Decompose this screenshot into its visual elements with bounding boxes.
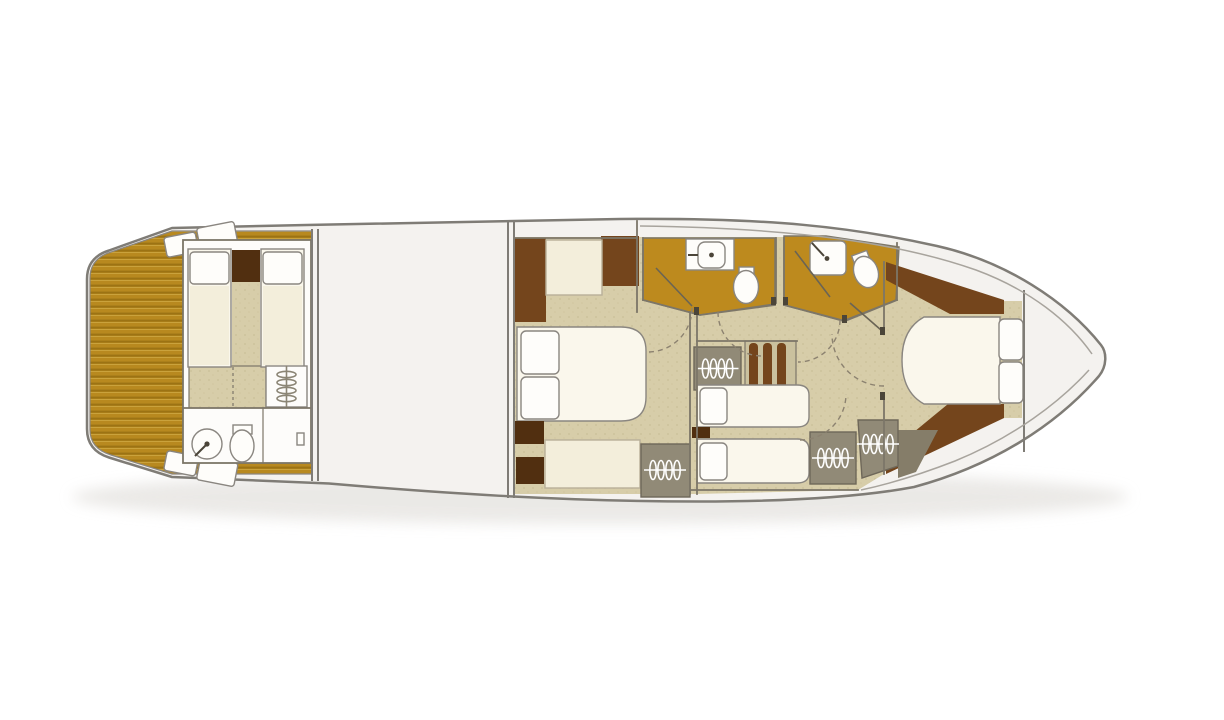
hinge bbox=[771, 297, 776, 305]
crew-nightstand bbox=[232, 250, 260, 282]
twin-nightstand bbox=[692, 427, 710, 438]
toilet bbox=[734, 271, 759, 304]
pillow bbox=[521, 377, 559, 419]
floor-plan-svg bbox=[0, 0, 1224, 720]
master-nightstand bbox=[514, 421, 544, 444]
stair-rail bbox=[763, 343, 772, 389]
pillow bbox=[521, 331, 559, 374]
basin-drain bbox=[709, 253, 714, 258]
crew-toilet bbox=[230, 430, 254, 462]
hinge bbox=[783, 297, 788, 305]
crew-bed-mattress bbox=[190, 286, 229, 365]
lobby bbox=[694, 341, 796, 390]
crew-bed-mattress bbox=[263, 286, 302, 365]
pillow bbox=[263, 252, 302, 284]
master-cabinet-right bbox=[601, 236, 639, 286]
hinge bbox=[694, 307, 699, 315]
crew-floor-strip bbox=[232, 282, 260, 366]
master-nightstand bbox=[516, 457, 544, 484]
hinge bbox=[842, 315, 847, 323]
pillow bbox=[999, 362, 1023, 403]
master-cabinet-left bbox=[514, 238, 546, 322]
hinge bbox=[880, 327, 885, 335]
pillow bbox=[700, 443, 727, 480]
vip-island-bed bbox=[902, 317, 1000, 404]
pillow bbox=[700, 388, 727, 424]
master-bench bbox=[545, 440, 640, 488]
pillow bbox=[999, 319, 1023, 360]
stair-rail bbox=[749, 343, 758, 389]
fitting bbox=[297, 433, 304, 445]
hinge bbox=[880, 392, 885, 400]
master-seat bbox=[546, 240, 602, 295]
shower-drain bbox=[825, 256, 830, 261]
stair-rail bbox=[777, 343, 786, 389]
crew-stowage bbox=[189, 366, 266, 408]
floor-plan-canvas bbox=[0, 0, 1224, 720]
pillow bbox=[190, 252, 229, 284]
